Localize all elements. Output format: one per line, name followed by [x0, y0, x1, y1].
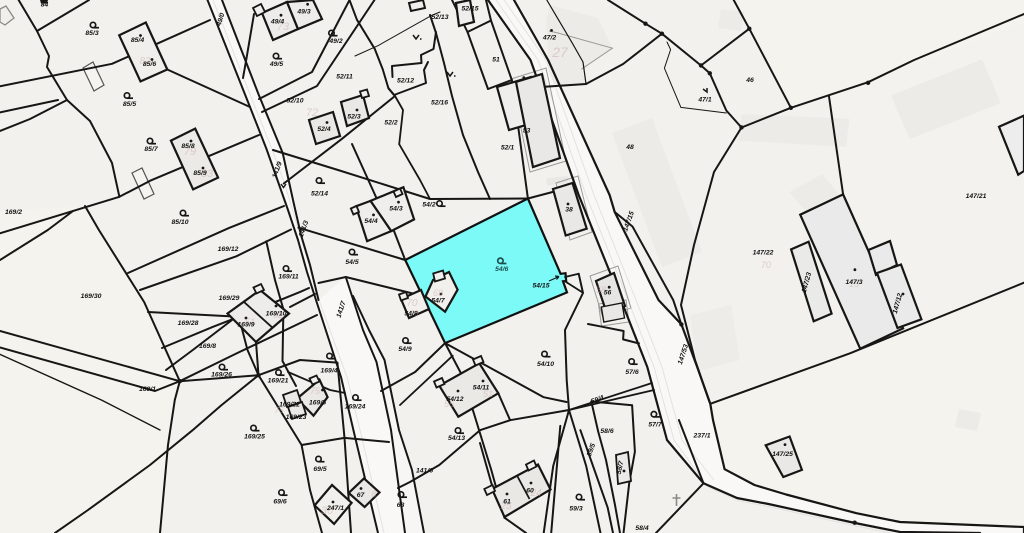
svg-text:69/5: 69/5: [313, 466, 326, 473]
svg-text:47/2: 47/2: [542, 35, 556, 42]
svg-text:147/3: 147/3: [845, 279, 862, 286]
svg-text:169/30: 169/30: [81, 293, 102, 300]
svg-text:47/1: 47/1: [697, 97, 711, 104]
svg-text:54/4: 54/4: [364, 218, 377, 225]
svg-text:54/8: 54/8: [404, 311, 417, 318]
svg-text:169/24: 169/24: [345, 404, 366, 411]
svg-text:54/13: 54/13: [448, 435, 465, 442]
svg-text:169/23: 169/23: [286, 414, 307, 421]
svg-text:85/9: 85/9: [193, 170, 206, 177]
svg-text:147/22: 147/22: [753, 250, 774, 257]
svg-text:54/6: 54/6: [495, 266, 508, 273]
svg-text:169/25: 169/25: [244, 434, 265, 441]
svg-text:169/10: 169/10: [266, 311, 287, 318]
svg-text:54/15: 54/15: [532, 283, 549, 290]
svg-text:58/6: 58/6: [600, 428, 613, 435]
svg-text:70: 70: [406, 298, 418, 309]
svg-text:52/10: 52/10: [286, 98, 303, 105]
svg-text:54/5: 54/5: [345, 259, 358, 266]
svg-text:69/6: 69/6: [273, 499, 286, 506]
svg-text:8: 8: [371, 489, 376, 499]
svg-text:85/5: 85/5: [123, 101, 136, 108]
svg-text:85/10: 85/10: [171, 219, 188, 226]
svg-text:72: 72: [306, 107, 318, 119]
svg-text:49/2: 49/2: [328, 38, 342, 45]
svg-text:147/25: 147/25: [772, 451, 793, 458]
svg-text:75: 75: [310, 386, 321, 396]
svg-text:54/10: 54/10: [537, 361, 554, 368]
svg-text:54/2: 54/2: [422, 202, 435, 209]
svg-text:54/3: 54/3: [389, 206, 402, 213]
svg-text:169/1: 169/1: [139, 386, 156, 393]
svg-text:169/12: 169/12: [218, 246, 239, 253]
svg-text:169/8: 169/8: [199, 343, 216, 350]
svg-text:169/29: 169/29: [219, 295, 240, 302]
svg-text:52/11: 52/11: [336, 74, 353, 81]
svg-text:169/5: 169/5: [309, 400, 326, 407]
svg-text:169/22: 169/22: [279, 401, 300, 408]
svg-text:57/6: 57/6: [625, 369, 638, 376]
svg-text:54/7: 54/7: [431, 298, 445, 305]
svg-text:52/1: 52/1: [501, 145, 514, 152]
svg-text:53: 53: [523, 128, 531, 135]
svg-text:49/4: 49/4: [270, 19, 284, 26]
svg-text:237/1: 237/1: [692, 433, 710, 440]
svg-text:57/7: 57/7: [648, 422, 662, 429]
svg-text:61: 61: [503, 499, 511, 506]
svg-text:54/9: 54/9: [398, 346, 411, 353]
svg-text:67: 67: [357, 492, 366, 499]
svg-text:52/13: 52/13: [431, 14, 448, 21]
svg-text:49/5: 49/5: [269, 61, 283, 68]
svg-text:169/9: 169/9: [237, 322, 254, 329]
svg-text:46: 46: [745, 77, 754, 84]
svg-text:52/12: 52/12: [397, 78, 414, 85]
svg-text:27: 27: [551, 44, 569, 60]
svg-text:49/3: 49/3: [296, 9, 310, 16]
svg-text:70: 70: [761, 260, 771, 270]
svg-text:52/14: 52/14: [311, 191, 328, 198]
svg-text:52/16: 52/16: [431, 100, 448, 107]
svg-text:84: 84: [41, 2, 49, 9]
svg-text:48: 48: [625, 144, 634, 151]
svg-text:60: 60: [526, 488, 534, 495]
svg-text:52/15: 52/15: [461, 6, 478, 13]
svg-text:169/11: 169/11: [278, 274, 299, 281]
svg-text:54/11: 54/11: [473, 385, 490, 392]
svg-text:58/4: 58/4: [635, 525, 648, 532]
svg-text:141/6: 141/6: [416, 468, 433, 475]
svg-text:38: 38: [565, 207, 573, 214]
svg-text:169/21: 169/21: [268, 378, 289, 385]
svg-text:85/6: 85/6: [143, 61, 156, 68]
svg-text:52/2: 52/2: [384, 120, 397, 127]
svg-text:85/7: 85/7: [144, 146, 158, 153]
svg-text:169/28: 169/28: [178, 320, 199, 327]
svg-text:54/12: 54/12: [446, 396, 463, 403]
svg-text:51: 51: [492, 57, 500, 64]
svg-text:68: 68: [397, 502, 405, 509]
svg-text:52/3: 52/3: [347, 114, 360, 121]
svg-text:247/1: 247/1: [326, 505, 344, 512]
svg-text:56: 56: [604, 290, 612, 297]
svg-text:59/3: 59/3: [569, 506, 582, 513]
svg-text:169/2: 169/2: [5, 209, 22, 216]
svg-text:69: 69: [433, 288, 443, 298]
svg-text:147/21: 147/21: [966, 193, 987, 200]
svg-text:85/8: 85/8: [181, 143, 194, 150]
svg-text:169/26: 169/26: [211, 372, 232, 379]
svg-text:85/4: 85/4: [131, 37, 144, 44]
svg-text:52/4: 52/4: [317, 126, 330, 133]
svg-text:85/3: 85/3: [85, 30, 98, 37]
svg-text:169/4: 169/4: [320, 368, 337, 375]
